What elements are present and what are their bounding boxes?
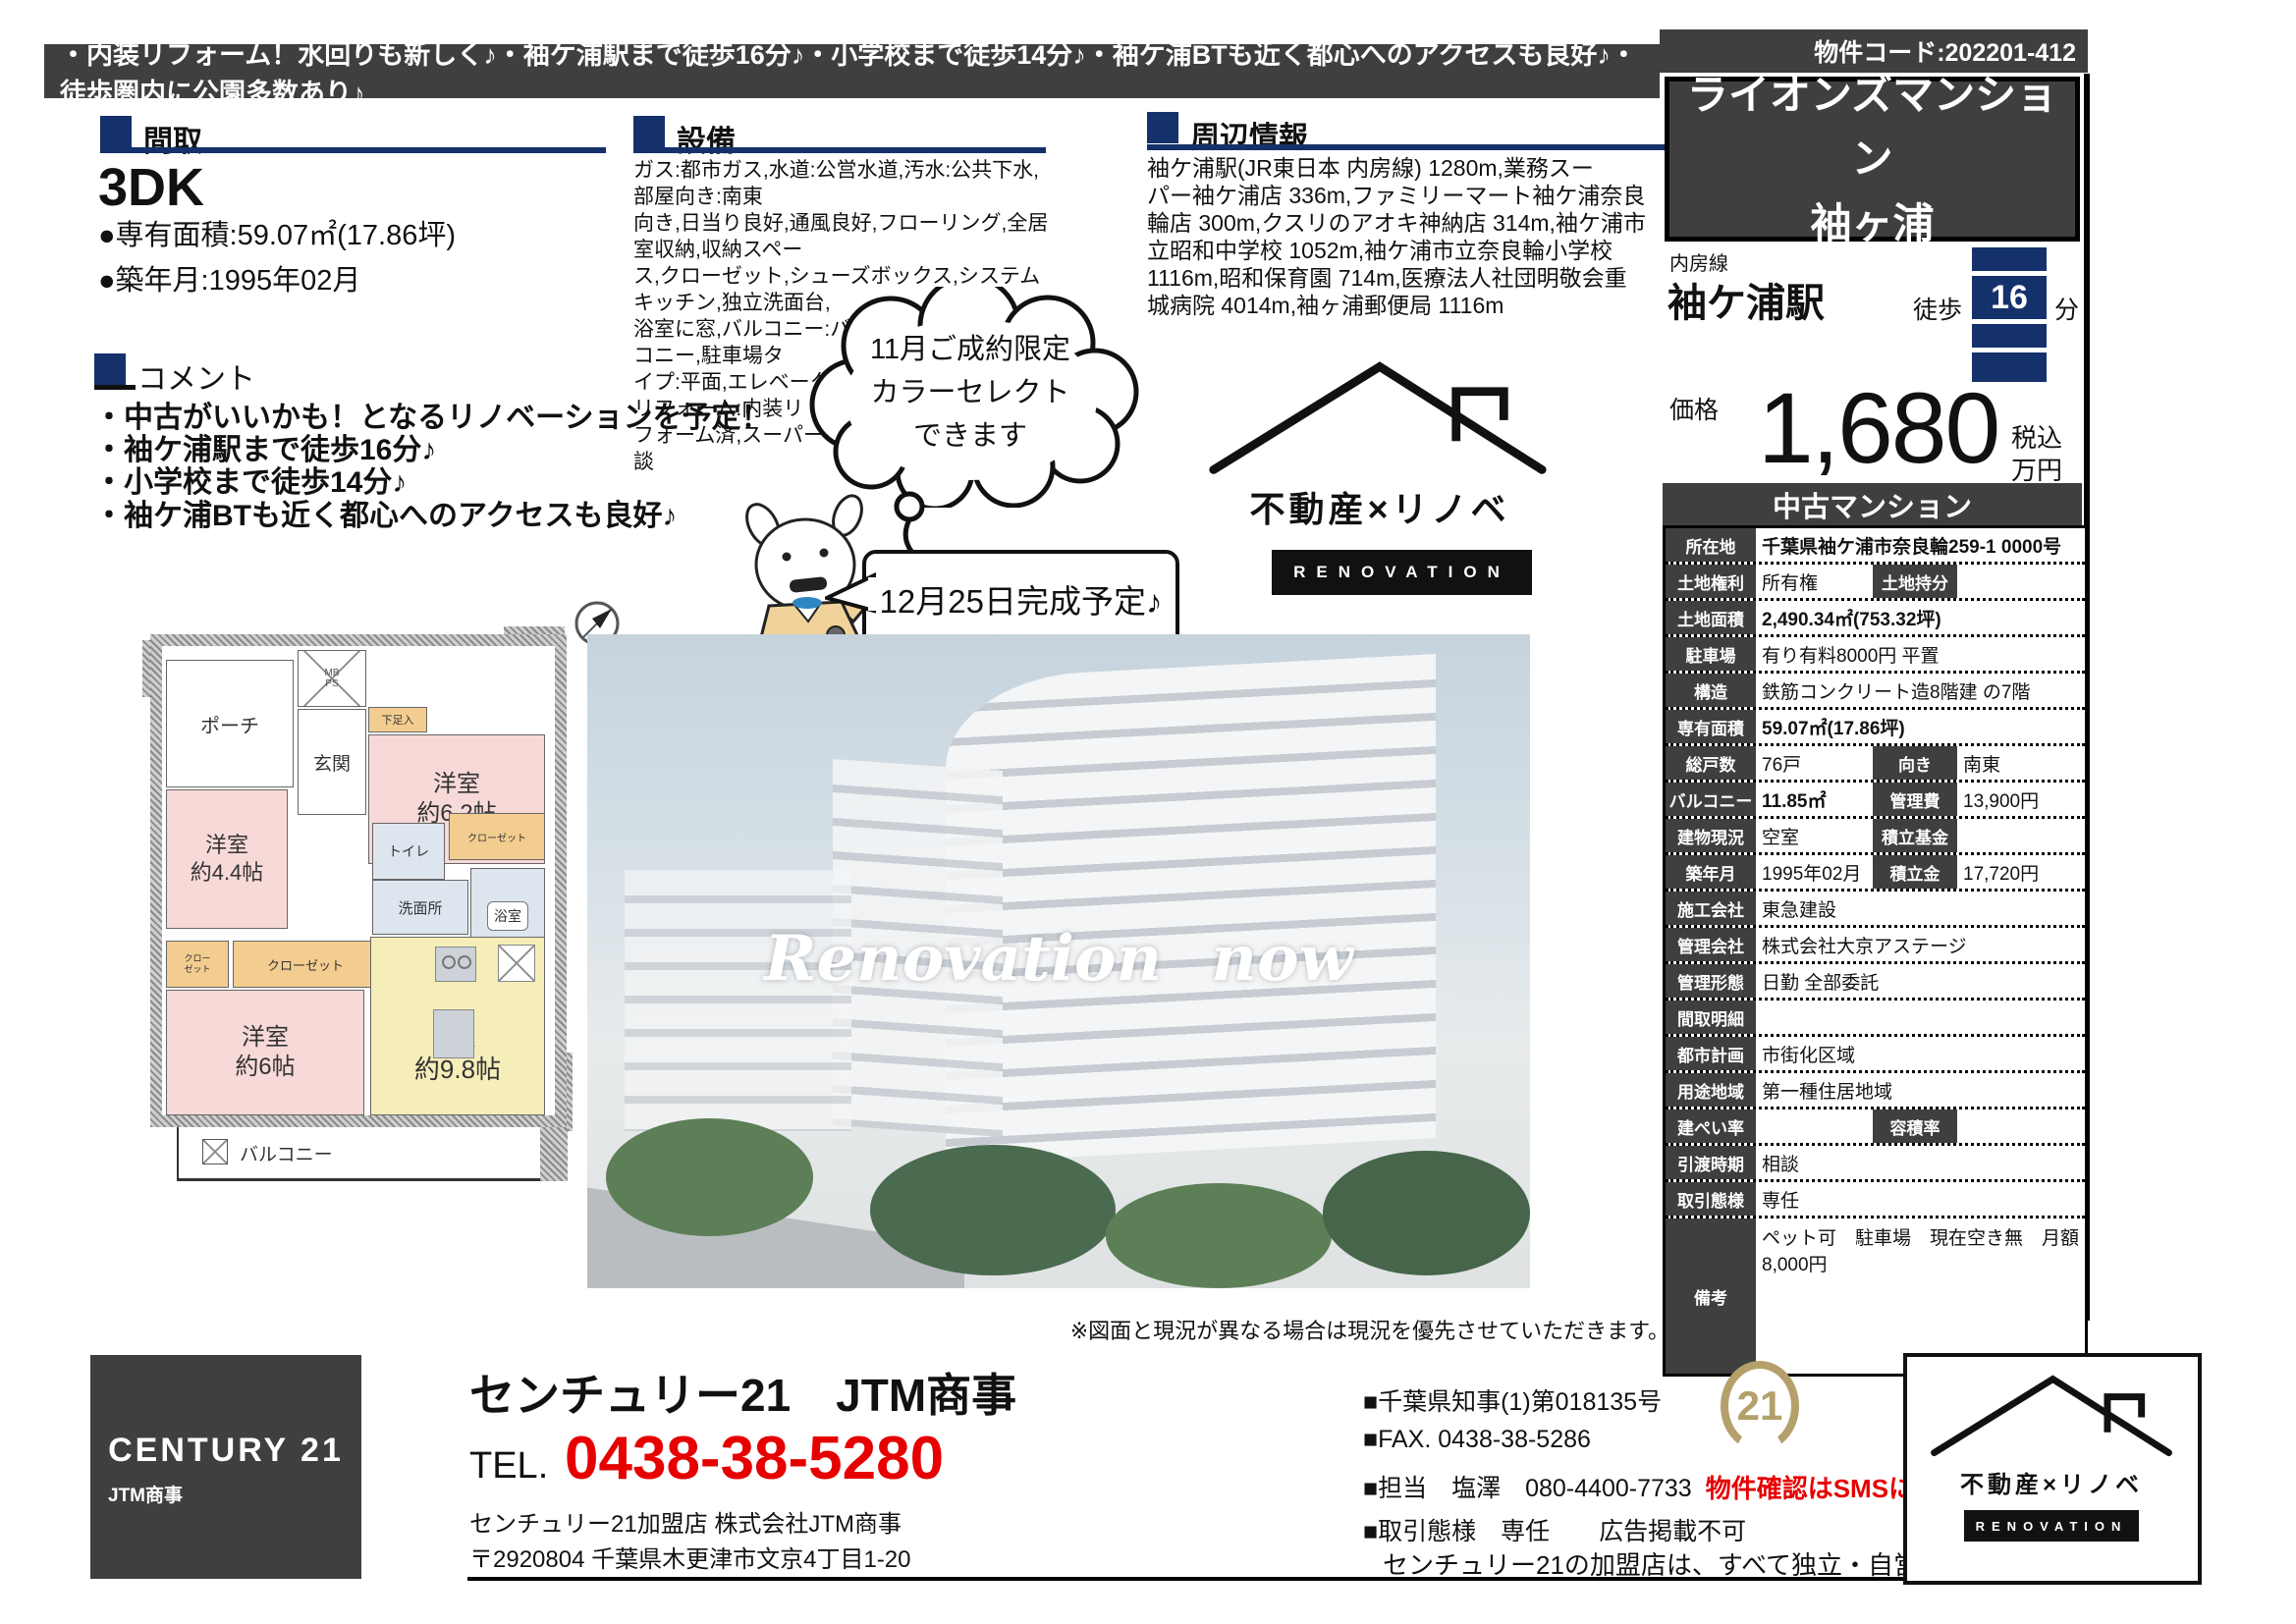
- tel-number: 0438-38-5280: [565, 1424, 944, 1493]
- spec-value: 2,490.34㎡(753.32坪): [1756, 601, 2085, 634]
- century21-seal-icon: 21: [1721, 1361, 1799, 1451]
- building-photo: Renovation now: [587, 634, 1530, 1288]
- table-row: 建物現況空室積立基金: [1666, 819, 2085, 855]
- disclaimer-line: センチュリー21の加盟店は、すべて独立・自営です。: [1383, 1545, 1993, 1582]
- photo-tree: [1106, 1183, 1332, 1288]
- spec-value: 76戸: [1756, 746, 1873, 780]
- photo-caption: ※図面と現況が異なる場合は現況を優先させていただきます。: [884, 1314, 1669, 1345]
- price-value: 1,680: [1758, 371, 1998, 486]
- floorplan-shoe-box: 下足入: [368, 707, 427, 732]
- spec-label: 建物現況: [1666, 819, 1756, 852]
- spec-value: [1957, 1110, 2085, 1143]
- comment-heading: コメント: [137, 354, 255, 398]
- renovation-logo-name: 不動産×リノベ: [1917, 1465, 2186, 1499]
- walk-minutes-box: 16: [1972, 276, 2047, 319]
- table-row: 構造鉄筋コンクリート造8階建 の7階: [1666, 674, 2085, 710]
- price-note: 税込 万円: [2011, 422, 2062, 487]
- deal-line: ■取引態様 専任 広告掲載不可: [1363, 1512, 1746, 1547]
- walk-unit: 分: [2054, 291, 2079, 326]
- comment-underline: [94, 385, 136, 390]
- spec-label: 建ぺい率: [1666, 1110, 1756, 1143]
- floorplan-room-western2: 洋室 約4.4帖: [166, 789, 288, 929]
- renovation-logo-sub: RENOVATION: [1272, 550, 1532, 595]
- table-row: 土地面積2,490.34㎡(753.32坪): [1666, 601, 2085, 637]
- spec-label: 管理会社: [1666, 928, 1756, 961]
- spec-label: 築年月: [1666, 855, 1756, 889]
- completion-bubble: 12月25日完成予定♪: [862, 550, 1179, 648]
- spec-value: 第一種住居地域: [1756, 1073, 2085, 1107]
- spec-value: 1995年02月: [1756, 855, 1873, 889]
- fax-line: ■FAX. 0438-38-5286: [1363, 1426, 1591, 1454]
- spec-table: 所在地千葉県袖ケ浦市奈良輪259-1 0000号土地権利所有権土地持分土地面積2…: [1663, 525, 2088, 1377]
- spec-label: 間取明細: [1666, 1001, 1756, 1034]
- walk-box-blank: [1972, 247, 2047, 271]
- spec-value: 59.07㎡(17.86坪): [1756, 710, 2085, 743]
- shuhen-underline: [1147, 144, 1667, 150]
- table-row: 間取明細: [1666, 1001, 2085, 1037]
- spec-label: 取引態様: [1666, 1182, 1756, 1216]
- floorplan-balcony-label: バルコニー: [240, 1140, 333, 1166]
- spec-label: 都市計画: [1666, 1037, 1756, 1070]
- contact-text: ■担当 塩澤 080-4400-7733: [1363, 1469, 1692, 1505]
- table-row: 築年月1995年02月積立金17,720円: [1666, 855, 2085, 892]
- spec-label: 積立基金: [1873, 819, 1957, 852]
- tel-label: TEL.: [469, 1445, 548, 1488]
- spec-value: [1957, 819, 2085, 852]
- spec-value: 株式会社大京アステージ: [1756, 928, 2085, 961]
- spec-label: 土地面積: [1666, 601, 1756, 634]
- walk-box-blank: [1972, 324, 2047, 348]
- floorplan-hatch-icon: [498, 945, 535, 982]
- floorplan-room-porch: ポーチ: [166, 660, 294, 787]
- photo-building-main: [946, 654, 1436, 1164]
- built-date-line: ●築年月:1995年02月: [98, 257, 360, 298]
- top-tagline-bar: ・内装リフォーム！水回りも新しく♪・袖ケ浦駅まで徒歩16分♪・小学校まで徒歩14…: [44, 44, 1660, 98]
- address-line: 〒2920804 千葉県木更津市文京4丁目1-20: [469, 1540, 910, 1574]
- spec-label: 備考: [1666, 1218, 1756, 1374]
- seal-number: 21: [1737, 1382, 1783, 1430]
- photo-tree: [870, 1145, 1116, 1275]
- spec-value: 有り有料8000円 平置: [1756, 637, 2085, 671]
- floorplan-balcony: バルコニー: [177, 1127, 544, 1181]
- spec-value: 相談: [1756, 1146, 2085, 1179]
- setsubi-heading-square: [633, 116, 665, 147]
- spec-label: バルコニー: [1666, 783, 1756, 816]
- spec-value: 東急建設: [1756, 892, 2085, 925]
- spec-value: 空室: [1756, 819, 1873, 852]
- flyer-page: ・内装リフォーム！水回りも新しく♪・袖ケ浦駅まで徒歩16分♪・小学校まで徒歩14…: [0, 0, 2296, 1624]
- spec-label: 管理形態: [1666, 964, 1756, 998]
- spec-value: [1756, 1001, 2085, 1034]
- comment-heading-square: [94, 353, 126, 385]
- category-bar: 中古マンション: [1663, 483, 2082, 525]
- table-row: 施工会社東急建設: [1666, 892, 2085, 928]
- spec-value: [1756, 1110, 1873, 1143]
- table-row: 引渡時期相談: [1666, 1146, 2085, 1182]
- setsubi-underline: [633, 147, 1046, 153]
- spec-label: 引渡時期: [1666, 1146, 1756, 1179]
- floorplan-spacer: [368, 652, 543, 703]
- spec-value: 南東: [1957, 746, 2085, 780]
- spec-label: 用途地域: [1666, 1073, 1756, 1107]
- spec-label: 専有面積: [1666, 710, 1756, 743]
- spec-label: 積立金: [1873, 855, 1957, 889]
- comment-line: ・袖ケ浦BTも近く都心へのアクセスも良好♪: [94, 491, 678, 534]
- madori-heading-square: [100, 116, 132, 147]
- renovation-logo-roof: [1929, 1369, 2174, 1459]
- table-row: 取引態様専任: [1666, 1182, 2085, 1218]
- spec-value: 千葉県袖ケ浦市奈良輪259-1 0000号: [1756, 528, 2085, 562]
- license-line: ■千葉県知事(1)第018135号: [1363, 1382, 1662, 1418]
- member-line: センチュリー21加盟店 株式会社JTM商事: [469, 1504, 902, 1539]
- floorplan-closet-top: クローゼット: [449, 813, 545, 860]
- spec-label: 駐車場: [1666, 637, 1756, 671]
- shuhen-body: 袖ケ浦駅(JR東日本 内房線) 1280m,業務スー パー袖ケ浦店 336m,フ…: [1147, 154, 1677, 319]
- table-row: 都市計画市街化区域: [1666, 1037, 2085, 1073]
- shuhen-heading-square: [1147, 112, 1178, 143]
- floorplan-room-western3: 洋室 約6帖: [166, 990, 364, 1115]
- floor-plan: ポーチ MB PS 玄関 下足入 洋室 約6.2帖 洋室 約4.4帖 トイレ ク…: [142, 621, 574, 1221]
- spec-value: 専任: [1756, 1182, 2085, 1216]
- madori-heading: 間取: [143, 117, 202, 160]
- spec-value: 市街化区域: [1756, 1037, 2085, 1070]
- table-row: 建ぺい率容積率: [1666, 1110, 2085, 1146]
- spec-value: 日勤 全部委託: [1756, 964, 2085, 998]
- walk-label: 徒歩: [1913, 291, 1962, 326]
- balcony-hatch-icon: [202, 1139, 228, 1164]
- table-row: 駐車場有り有料8000円 平置: [1666, 637, 2085, 674]
- setsubi-heading: 設備: [677, 117, 736, 160]
- table-row: 所在地千葉県袖ケ浦市奈良輪259-1 0000号: [1666, 528, 2085, 565]
- table-row: 用途地域第一種住居地域: [1666, 1073, 2085, 1110]
- contact-line: ■担当 塩澤 080-4400-7733 物件確認はSMSにて: [1363, 1469, 1940, 1505]
- spec-label: 所在地: [1666, 528, 1756, 562]
- renovation-logo-box: 不動産×リノベ RENOVATION: [1903, 1353, 2202, 1585]
- top-tagline-text: ・内装リフォーム！水回りも新しく♪・袖ケ浦駅まで徒歩16分♪・小学校まで徒歩14…: [60, 33, 1660, 110]
- spec-value: 11.85㎡: [1756, 783, 1873, 816]
- property-title: ライオンズマンション 袖ヶ浦: [1665, 77, 2080, 242]
- completion-bubble-tail: [825, 571, 876, 619]
- spec-label: 総戸数: [1666, 746, 1756, 780]
- renovation-logo-sub: RENOVATION: [1964, 1510, 2139, 1542]
- spec-label: 管理費: [1873, 783, 1957, 816]
- spec-value: ペット可 駐車場 現在空き無 月額8,000円: [1756, 1218, 2085, 1374]
- spec-value: 13,900円: [1957, 783, 2085, 816]
- floorplan-stove-icon: [435, 947, 476, 982]
- photo-tree: [606, 1118, 813, 1236]
- floorplan-closet-mid: クローゼット: [233, 941, 378, 988]
- spec-label: 施工会社: [1666, 892, 1756, 925]
- spec-label: 構造: [1666, 674, 1756, 707]
- layout-type: 3DK: [98, 157, 204, 218]
- renovation-logo-name: 不動産×リノベ: [1218, 481, 1542, 532]
- table-row: 専有面積59.07㎡(17.86坪): [1666, 710, 2085, 746]
- table-row: 総戸数76戸向き南東: [1666, 746, 2085, 783]
- madori-underline: [100, 147, 606, 153]
- floorplan-room-toilet: トイレ: [372, 823, 445, 880]
- station-name: 袖ケ浦駅: [1667, 271, 1825, 328]
- store-name: センチュリー21 JTM商事: [469, 1360, 1016, 1425]
- photo-building-far: [625, 870, 850, 1131]
- century21-brand: CENTURY 21: [106, 1432, 346, 1470]
- spec-value: [1957, 565, 2085, 598]
- table-row: 土地権利所有権土地持分: [1666, 565, 2085, 601]
- spec-value: 所有権: [1756, 565, 1873, 598]
- table-row: 備考ペット可 駐車場 現在空き無 月額8,000円: [1666, 1218, 2085, 1374]
- table-row: バルコニー11.85㎡管理費13,900円: [1666, 783, 2085, 819]
- floorplan-sink-icon: [433, 1009, 474, 1058]
- floorplan-closet-side: クロー ゼット: [166, 941, 229, 988]
- floorplan-shaft-mb-ps: MB PS: [298, 650, 366, 707]
- table-row: 管理形態日勤 全部委託: [1666, 964, 2085, 1001]
- floorplan-room-washroom: 洗面所: [372, 880, 468, 935]
- spec-label: 向き: [1873, 746, 1957, 780]
- photo-overlay-text: Renovation now: [587, 922, 1530, 996]
- cloud-bubble-text: 11月ご成約限定 カラーセレクト できます: [827, 328, 1114, 458]
- spec-value: 17,720円: [1957, 855, 2085, 889]
- table-row: 管理会社株式会社大京アステージ: [1666, 928, 2085, 964]
- completion-bubble-text: 12月25日完成予定♪: [880, 575, 1163, 623]
- exclusive-area-line: ●専有面積:59.07㎡(17.86坪): [98, 212, 456, 253]
- photo-tree: [1323, 1151, 1530, 1275]
- spec-value: 鉄筋コンクリート造8階建 の7階: [1756, 674, 2085, 707]
- spec-label: 容積率: [1873, 1110, 1957, 1143]
- price-label: 価格: [1669, 391, 1719, 426]
- floorplan-room-entrance: 玄関: [298, 709, 366, 815]
- spec-label: 土地持分: [1873, 565, 1957, 598]
- floorplan-wall-block: [540, 1127, 568, 1181]
- spec-label: 土地権利: [1666, 565, 1756, 598]
- century21-store: JTM商事: [108, 1481, 183, 1507]
- century21-logo-block: CENTURY 21 JTM商事: [90, 1355, 361, 1579]
- renovation-logo-roof: [1206, 352, 1550, 479]
